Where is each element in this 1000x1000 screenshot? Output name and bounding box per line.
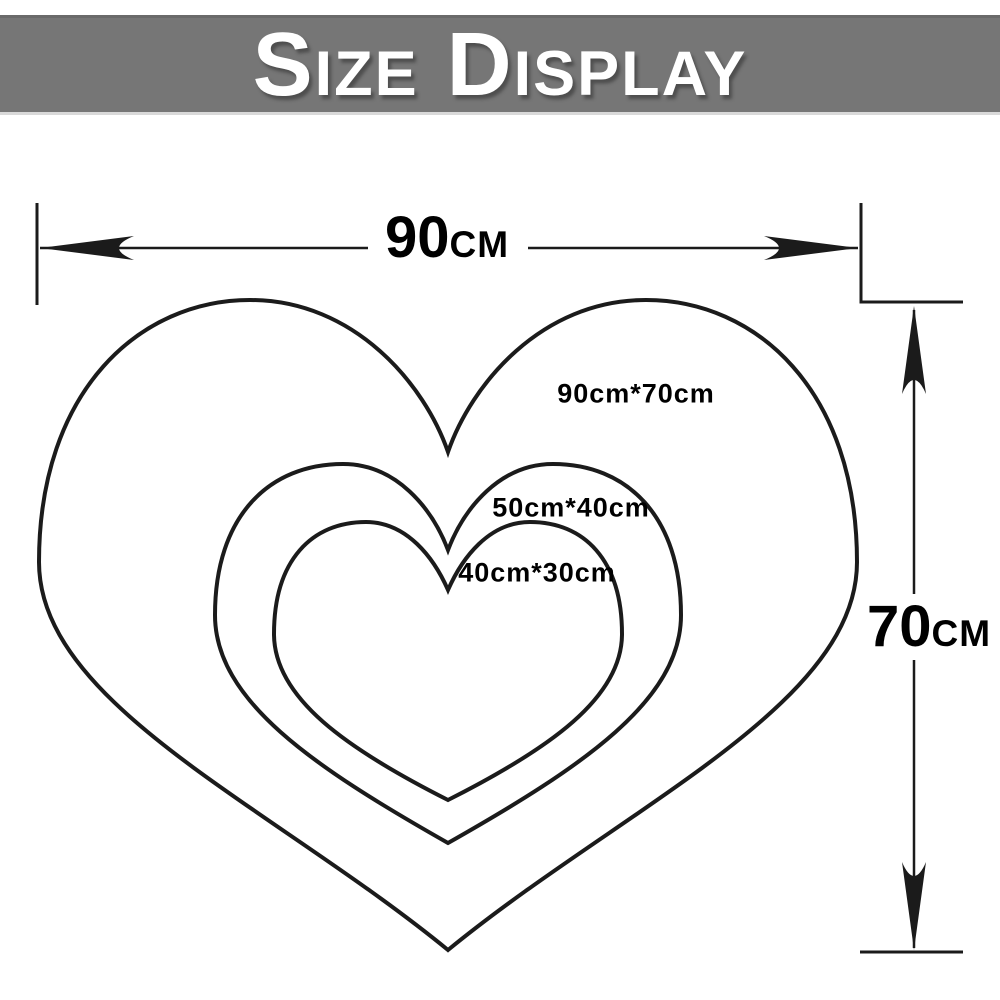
- height-dimension-value: 70: [867, 598, 932, 656]
- height-dimension-label: 70 CM: [867, 598, 991, 656]
- width-dimension-value: 90: [385, 209, 450, 267]
- heart-size-label-medium: 50cm*40cm: [492, 493, 650, 524]
- heart-outline-large: [39, 300, 857, 950]
- heart-size-label-large: 90cm*70cm: [557, 379, 715, 410]
- width-dimension-label: 90 CM: [385, 209, 509, 267]
- size-display-page: S IZE D ISPLAY: [0, 0, 1000, 1000]
- dimension-corner-bracket: [861, 203, 963, 302]
- heart-size-label-small: 40cm*30cm: [458, 558, 616, 589]
- width-dimension-unit: CM: [449, 226, 509, 263]
- height-dimension-unit: CM: [931, 615, 991, 652]
